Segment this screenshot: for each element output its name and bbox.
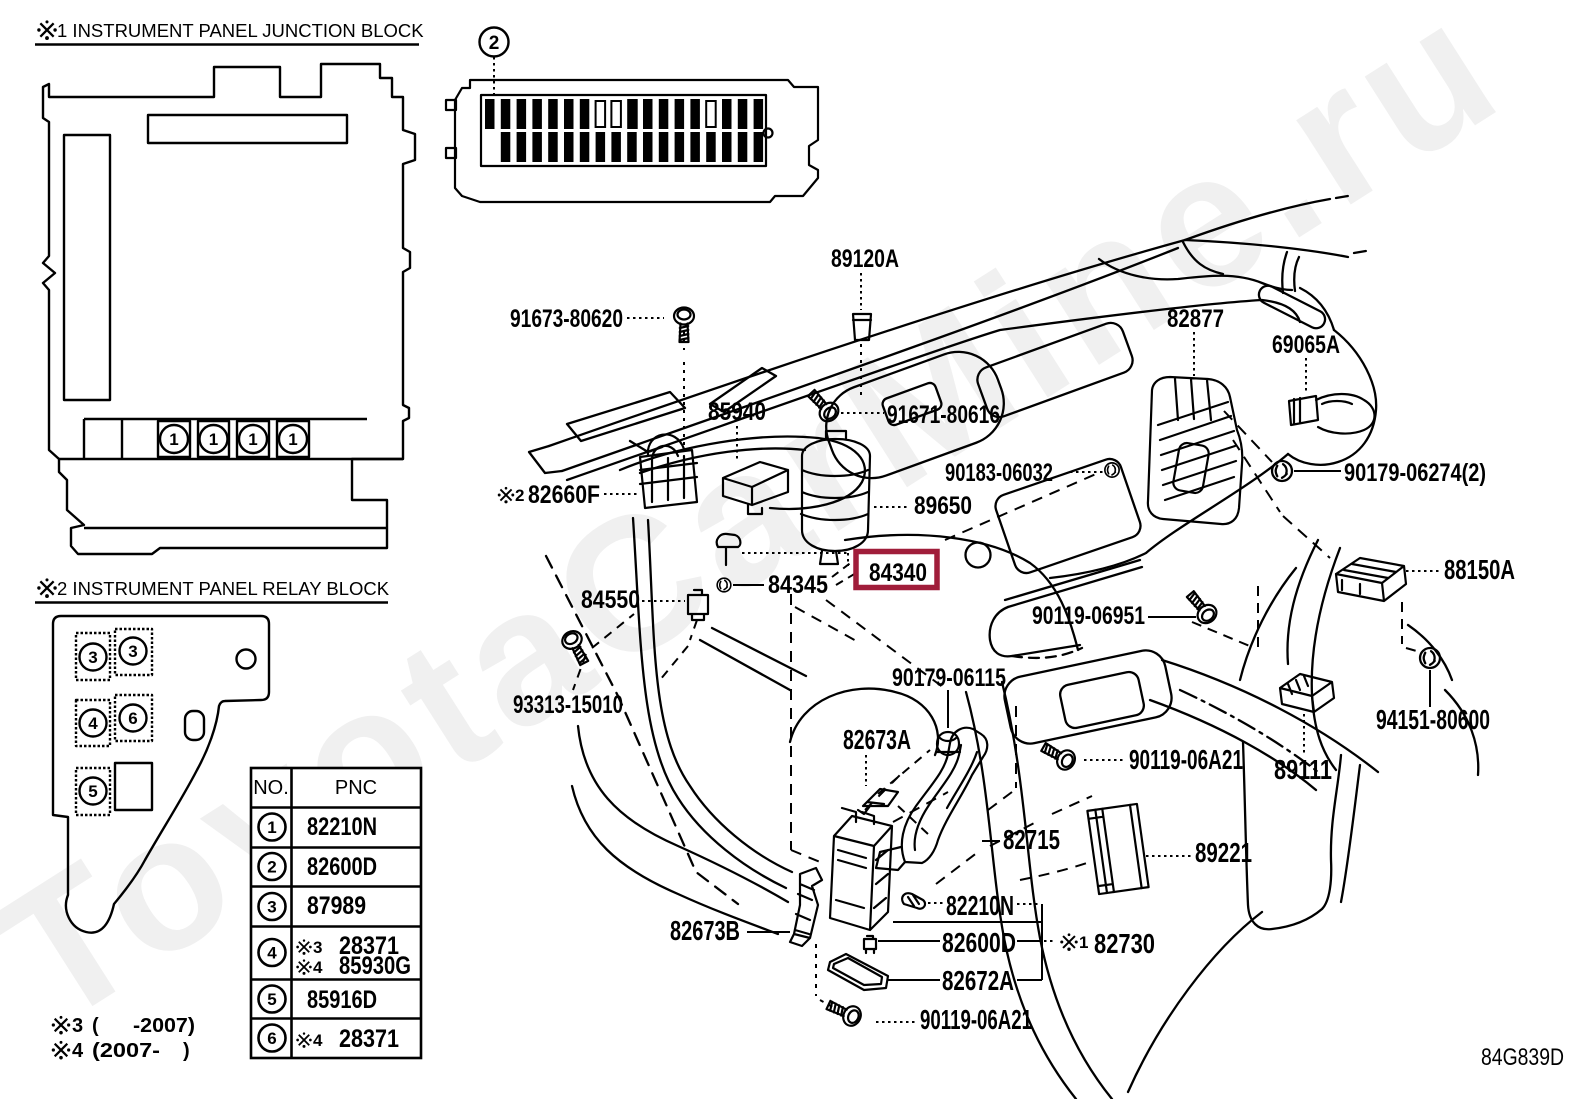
svg-text:1: 1 [169,430,178,449]
svg-text:90119-06A21: 90119-06A21 [920,1004,1032,1035]
svg-text:91671-80616: 91671-80616 [887,401,1000,429]
svg-text:1 INSTRUMENT PANEL JUNCTION BL: 1 INSTRUMENT PANEL JUNCTION BLOCK [57,20,424,41]
svg-text:1: 1 [1079,933,1088,952]
svg-text:2: 2 [267,858,276,877]
svg-text:85916D: 85916D [307,986,377,1014]
svg-text:93313-15010: 93313-15010 [513,691,623,719]
svg-text:82210N: 82210N [946,890,1014,921]
svg-text:4: 4 [313,1031,323,1050]
svg-text:6: 6 [267,1029,276,1048]
svg-text:5: 5 [88,782,97,801]
svg-text:1: 1 [248,430,257,449]
svg-text:): ) [183,1040,190,1062]
svg-text:89221: 89221 [1195,837,1252,868]
svg-text:82660F: 82660F [528,481,600,509]
svg-text:4: 4 [72,1040,84,1062]
svg-text:85940: 85940 [708,398,766,426]
svg-text:84G839D: 84G839D [1481,1044,1564,1071]
svg-text:90119-06A21: 90119-06A21 [1129,744,1243,775]
svg-text:91673-80620: 91673-80620 [510,305,623,333]
svg-text:82877: 82877 [1167,305,1224,333]
svg-text:89120A: 89120A [831,245,899,273]
svg-text:88150A: 88150A [1444,554,1515,585]
svg-text:4: 4 [88,714,98,733]
svg-text:84345: 84345 [768,571,828,599]
svg-text:85930G: 85930G [339,952,411,980]
svg-text:2: 2 [515,486,524,505]
svg-text:69065A: 69065A [1272,331,1340,359]
svg-text:90119-06951: 90119-06951 [1032,602,1145,630]
svg-text:(2007-: (2007- [92,1040,160,1062]
svg-text:2 INSTRUMENT PANEL RELAY BLOCK: 2 INSTRUMENT PANEL RELAY BLOCK [57,578,390,599]
svg-text:90179-06274(2): 90179-06274(2) [1344,459,1486,487]
svg-text:82210N: 82210N [307,813,377,841]
svg-text:82673A: 82673A [843,724,911,755]
svg-text:3: 3 [128,642,137,661]
svg-text:-2007): -2007) [133,1015,195,1037]
svg-text:84550: 84550 [581,586,640,614]
svg-text:3: 3 [267,898,276,917]
svg-text:28371: 28371 [339,1025,399,1053]
svg-text:PNC: PNC [335,777,377,799]
svg-text:1: 1 [288,430,297,449]
svg-text:3: 3 [88,648,97,667]
svg-text:5: 5 [267,990,276,1009]
svg-text:90183-06032: 90183-06032 [945,459,1053,487]
svg-text:6: 6 [128,709,137,728]
svg-text:82673B: 82673B [670,915,740,946]
svg-text:3: 3 [313,938,322,957]
svg-text:82730: 82730 [1094,928,1155,959]
svg-text:89650: 89650 [914,492,972,520]
svg-text:1: 1 [267,818,276,837]
svg-text:94151-80600: 94151-80600 [1376,704,1490,735]
svg-text:89111: 89111 [1274,754,1332,785]
svg-text:82715: 82715 [1003,824,1060,855]
svg-text:2: 2 [489,33,500,54]
svg-text:(: ( [92,1015,99,1037]
svg-text:90179-06115: 90179-06115 [892,664,1006,692]
svg-text:82600D: 82600D [942,927,1016,958]
svg-text:4: 4 [313,958,323,977]
svg-text:1: 1 [209,430,218,449]
svg-text:4: 4 [267,944,277,963]
svg-text:82672A: 82672A [942,965,1014,996]
svg-text:87989: 87989 [307,892,366,920]
svg-text:NO.: NO. [253,777,289,799]
svg-text:3: 3 [72,1015,83,1037]
svg-text:84340: 84340 [869,559,927,587]
svg-text:82600D: 82600D [307,853,377,881]
